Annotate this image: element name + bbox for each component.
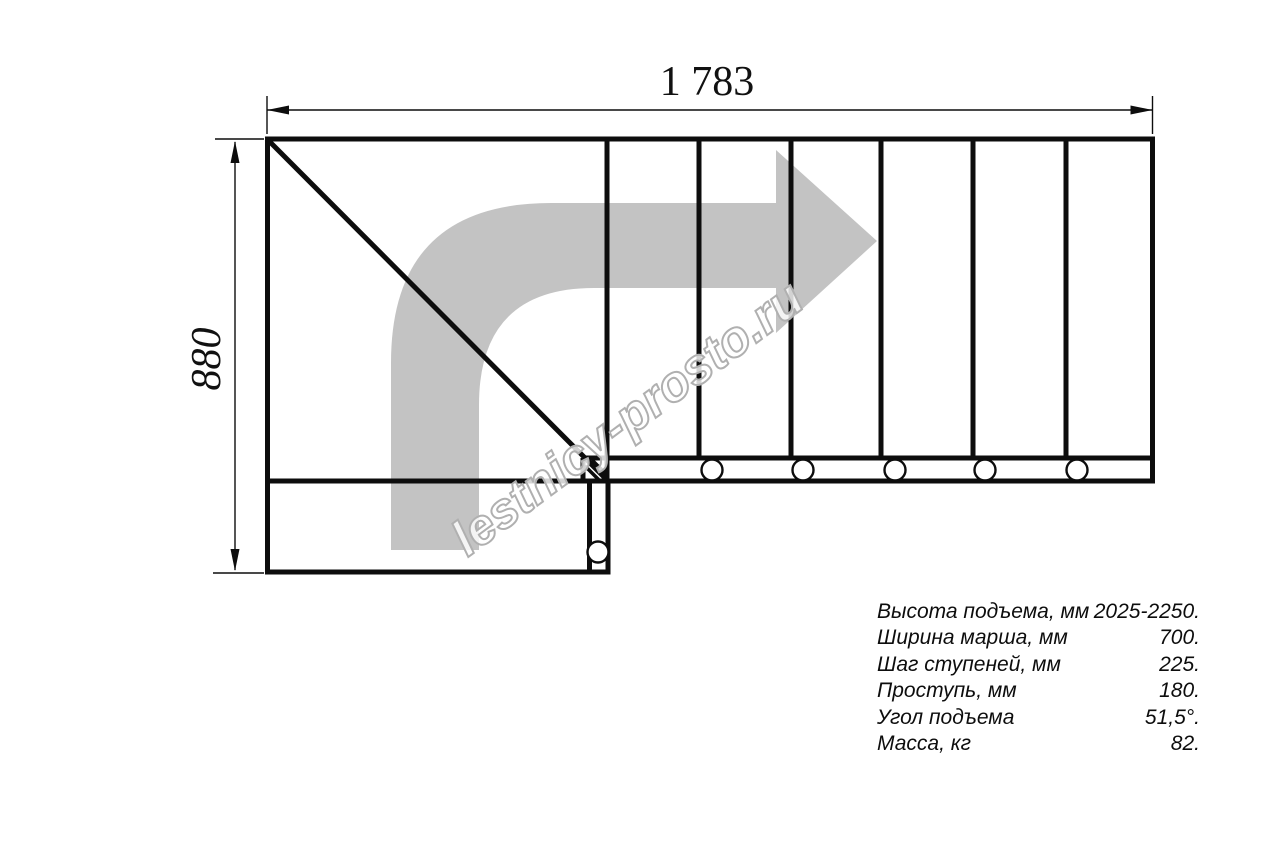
spec-row-tread-depth: Проступь, мм 180. — [877, 678, 1200, 704]
dim-arrow-down-icon — [231, 549, 240, 571]
screw-circle-3 — [885, 460, 906, 481]
screw-circle-5 — [1067, 460, 1088, 481]
spec-label: Масса, кг — [877, 731, 971, 757]
spec-value: 82. — [1171, 731, 1200, 757]
spec-row-step-pitch: Шаг ступеней, мм 225. — [877, 652, 1200, 678]
spec-value: 2025-2250. — [1094, 599, 1200, 625]
screw-circles — [588, 460, 1088, 563]
dim-arrow-up-icon — [231, 141, 240, 163]
dimension-lines — [213, 96, 1153, 573]
spec-label: Угол подъема — [877, 705, 1014, 731]
dim-arrow-right-icon — [1131, 106, 1153, 115]
staircase-drawing-canvas: 1 783 880 lestnicy-prosto.ru Высота подъ… — [0, 0, 1280, 853]
spec-value: 225. — [1159, 652, 1200, 678]
dimension-width-label: 1 783 — [627, 58, 787, 106]
screw-circle-bottom-step — [588, 542, 609, 563]
dim-arrow-left-icon — [267, 106, 289, 115]
spec-row-flight-width: Ширина марша, мм 700. — [877, 625, 1200, 651]
spec-label: Проступь, мм — [877, 678, 1017, 704]
spec-table: Высота подъема, мм 2025-2250. Ширина мар… — [877, 599, 1200, 757]
spec-row-lift-height: Высота подъема, мм 2025-2250. — [877, 599, 1200, 625]
spec-label: Шаг ступеней, мм — [877, 652, 1061, 678]
spec-value: 700. — [1159, 625, 1200, 651]
screw-circle-2 — [793, 460, 814, 481]
direction-arrow — [391, 150, 877, 550]
screw-circle-1 — [702, 460, 723, 481]
spec-row-mass: Масса, кг 82. — [877, 731, 1200, 757]
spec-value: 51,5°. — [1145, 705, 1200, 731]
spec-label: Ширина марша, мм — [877, 625, 1068, 651]
spec-value: 180. — [1159, 678, 1200, 704]
screw-circle-4 — [975, 460, 996, 481]
spec-label: Высота подъема, мм — [877, 599, 1089, 625]
spec-row-climb-angle: Угол подъема 51,5°. — [877, 705, 1200, 731]
dimension-height-label: 880 — [185, 299, 229, 419]
